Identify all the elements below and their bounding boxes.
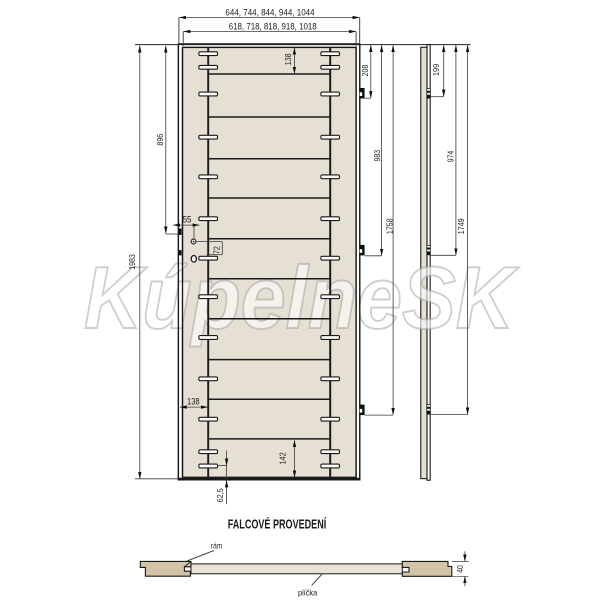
- svg-text:974: 974: [445, 151, 455, 163]
- svg-text:142: 142: [278, 452, 288, 464]
- svg-text:983: 983: [372, 150, 382, 162]
- svg-text:55: 55: [183, 214, 192, 224]
- svg-text:208: 208: [360, 65, 370, 77]
- svg-text:40: 40: [455, 565, 465, 573]
- svg-text:138: 138: [283, 53, 293, 65]
- svg-text:FALCOVÉ PROVEDENÍ: FALCOVÉ PROVEDENÍ: [228, 517, 327, 532]
- svg-text:618, 718, 818, 918, 1018: 618, 718, 818, 918, 1018: [229, 22, 317, 32]
- svg-text:72: 72: [211, 246, 221, 254]
- svg-text:138: 138: [187, 396, 200, 406]
- svg-text:1749: 1749: [456, 218, 466, 234]
- svg-text:199: 199: [431, 64, 441, 77]
- svg-text:rám: rám: [211, 542, 223, 551]
- svg-text:644, 744, 844, 944, 1044: 644, 744, 844, 944, 1044: [225, 8, 314, 18]
- svg-text:62,5: 62,5: [215, 488, 225, 502]
- svg-text:1983: 1983: [127, 254, 137, 270]
- svg-text:896: 896: [155, 134, 165, 146]
- svg-text:plíčka: plíčka: [298, 588, 318, 597]
- svg-text:KúpelneSK: KúpelneSK: [84, 248, 519, 347]
- svg-text:1758: 1758: [385, 218, 395, 234]
